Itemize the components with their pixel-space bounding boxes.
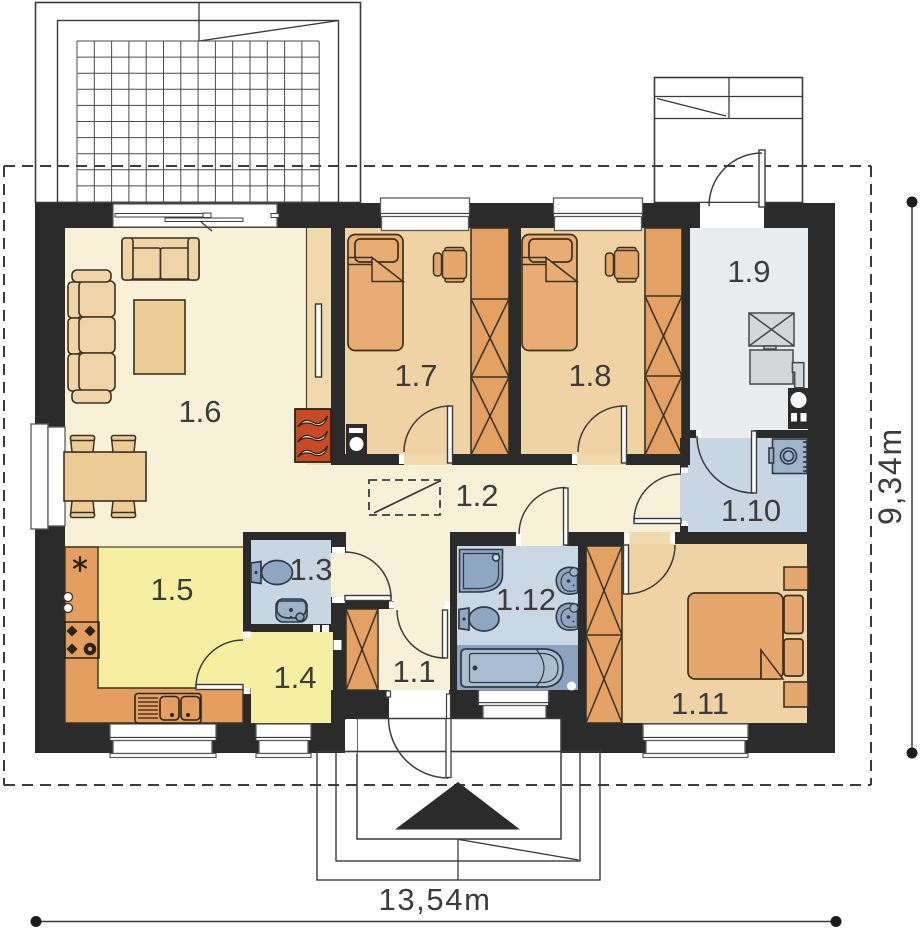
svg-text:1.11: 1.11 bbox=[671, 686, 729, 721]
svg-text:1.2: 1.2 bbox=[455, 478, 498, 513]
svg-text:1.8: 1.8 bbox=[568, 358, 611, 393]
svg-text:1.10: 1.10 bbox=[721, 493, 781, 528]
svg-text:13,54m: 13,54m bbox=[379, 882, 492, 917]
svg-text:9,34m: 9,34m bbox=[872, 427, 908, 525]
svg-text:1.12: 1.12 bbox=[496, 582, 556, 617]
svg-text:1.7: 1.7 bbox=[394, 358, 437, 393]
svg-text:1.5: 1.5 bbox=[150, 572, 193, 607]
svg-text:1.6: 1.6 bbox=[178, 394, 221, 429]
svg-text:1.4: 1.4 bbox=[273, 660, 316, 695]
svg-text:1.9: 1.9 bbox=[727, 254, 770, 289]
svg-text:1.3: 1.3 bbox=[289, 552, 332, 587]
svg-text:1.1: 1.1 bbox=[392, 654, 435, 689]
